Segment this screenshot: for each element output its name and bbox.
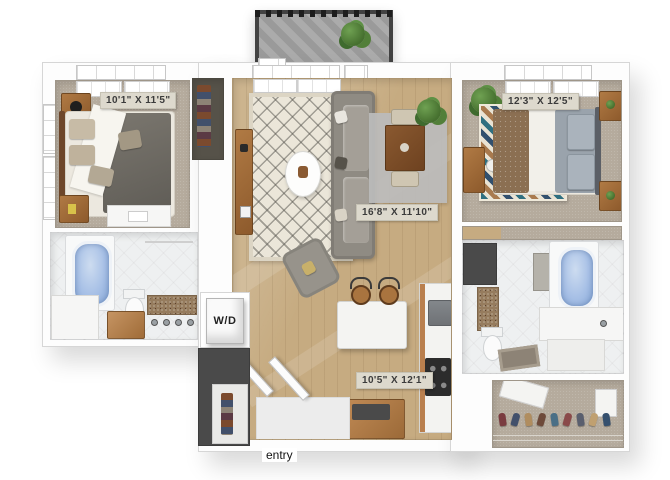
cabinet-face bbox=[420, 284, 425, 432]
shoe bbox=[524, 413, 533, 427]
bathtub bbox=[558, 247, 596, 309]
towel-bar bbox=[145, 241, 193, 243]
desk-item bbox=[240, 206, 251, 218]
closet-rod bbox=[493, 440, 623, 441]
book bbox=[68, 204, 76, 214]
nightstand-plant bbox=[606, 100, 615, 109]
shoe bbox=[536, 412, 546, 426]
bar-stool bbox=[379, 285, 399, 305]
bedroom2-window bbox=[504, 65, 592, 80]
tub-surround bbox=[549, 241, 599, 311]
vanity-cabinet bbox=[547, 339, 605, 371]
mosaic-backsplash bbox=[147, 295, 197, 315]
floor-plan-image: 10'1" X 11'5" bbox=[0, 0, 670, 480]
dresser bbox=[107, 205, 171, 227]
nightstand bbox=[59, 195, 89, 223]
leaning-board bbox=[499, 380, 549, 409]
coffee-table bbox=[285, 151, 321, 197]
bath-mat bbox=[498, 344, 541, 371]
faucet-knob bbox=[187, 319, 194, 326]
throw-pillow bbox=[334, 156, 348, 170]
bedroom1-closet bbox=[192, 78, 224, 160]
shoe bbox=[576, 413, 585, 427]
bathroom-2-floor bbox=[462, 240, 624, 374]
living-ceiling-window bbox=[253, 79, 297, 93]
shoe bbox=[510, 412, 520, 426]
bench-tray bbox=[352, 404, 390, 420]
linen-closet bbox=[463, 243, 497, 285]
bedroom1-window bbox=[76, 65, 166, 80]
centerpiece bbox=[400, 143, 409, 152]
bedroom2-desk bbox=[463, 147, 485, 193]
faucet-knob bbox=[151, 319, 158, 326]
throw-pillow bbox=[334, 208, 348, 222]
bathroom-1-floor bbox=[50, 232, 198, 340]
faucet-knob bbox=[163, 319, 170, 326]
balcony-plant bbox=[341, 22, 365, 46]
dining-table bbox=[385, 125, 425, 171]
bed-pillow bbox=[567, 114, 595, 150]
closet-rod bbox=[493, 435, 623, 436]
living-plant bbox=[417, 99, 441, 123]
bedroom2-dimension-label: 12'3" X 12'5" bbox=[502, 93, 579, 110]
bedroom2-hallway bbox=[462, 226, 622, 240]
bathroom-vanity bbox=[539, 307, 624, 341]
entry-tile bbox=[256, 397, 350, 440]
tray bbox=[128, 211, 148, 222]
kitchen-counter bbox=[419, 283, 452, 433]
desk-item bbox=[240, 144, 248, 152]
faucet-knob bbox=[175, 319, 182, 326]
bathroom-vanity bbox=[51, 295, 99, 340]
shoe bbox=[588, 412, 598, 426]
mosaic-wall bbox=[477, 287, 499, 331]
bar-stool bbox=[351, 285, 371, 305]
quilted-throw bbox=[493, 109, 529, 193]
shoe bbox=[562, 412, 572, 426]
throw-pillow bbox=[301, 260, 317, 276]
wood-threshold bbox=[463, 227, 501, 239]
shoe bbox=[498, 413, 507, 427]
bed-pillow bbox=[567, 154, 595, 190]
console-desk bbox=[235, 129, 253, 235]
kitchen-island bbox=[337, 301, 407, 349]
hanging-clothes bbox=[197, 85, 211, 147]
shoe bbox=[550, 413, 559, 427]
living-dimension-label: 16'8" X 11'10" bbox=[356, 204, 438, 221]
nightstand bbox=[599, 181, 622, 211]
table-decor bbox=[298, 166, 308, 178]
bed-pillow bbox=[69, 119, 95, 139]
entry-door-leaf bbox=[268, 356, 309, 401]
nightstand-plant bbox=[606, 191, 615, 200]
kitchen-dimension-label: 10'5" X 12'1" bbox=[356, 372, 433, 389]
kitchen-sink bbox=[428, 300, 452, 326]
storage-box bbox=[107, 311, 145, 339]
entry-bench bbox=[345, 399, 405, 439]
faucet bbox=[600, 320, 607, 327]
nightstand bbox=[599, 91, 622, 121]
bed bbox=[493, 109, 597, 193]
bed-pillow bbox=[69, 145, 95, 165]
bed-pillow bbox=[118, 129, 143, 151]
coat-closet bbox=[212, 384, 248, 444]
entry-label: entry bbox=[262, 448, 297, 462]
hanging-clothes bbox=[221, 393, 233, 435]
shoe bbox=[602, 413, 611, 427]
dining-chair bbox=[391, 109, 419, 125]
dining-chair bbox=[391, 171, 419, 187]
shoe-row bbox=[499, 413, 617, 433]
walk-in-closet-floor bbox=[492, 380, 624, 448]
washer-dryer: W/D bbox=[206, 298, 244, 344]
bedroom1-dimension-label: 10'1" X 11'5" bbox=[100, 92, 176, 109]
